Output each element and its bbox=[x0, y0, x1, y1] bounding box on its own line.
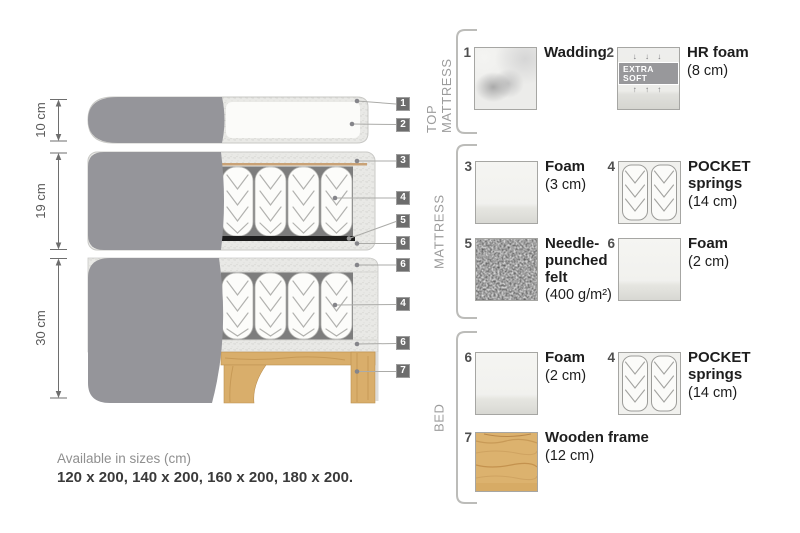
extra-soft-badge: EXTRA SOFT bbox=[618, 62, 679, 85]
legend-number: 6 bbox=[459, 350, 472, 365]
legend-item-pocket-springs: 4 POCKET springs (14 cm) bbox=[602, 161, 783, 224]
callout-tag-4b: 4 bbox=[396, 297, 410, 311]
wadding-swatch bbox=[474, 47, 537, 110]
section-title-top-mattress: TOP MATTRESS bbox=[428, 30, 450, 133]
top-mattress-fabric-cover bbox=[88, 97, 225, 143]
legend-number: 2 bbox=[601, 45, 614, 60]
dimension-label-bed: 30 cm bbox=[33, 298, 49, 358]
callout-tag-4: 4 bbox=[396, 191, 410, 205]
legend-item-hr-foam: 2 ↓ ↓ ↓ EXTRA SOFT ↑ ↑ ↑ HR foam (8 cm) bbox=[601, 47, 782, 110]
material-dimension: (8 cm) bbox=[687, 62, 782, 81]
callout-tag-1: 1 bbox=[396, 97, 410, 111]
material-dimension: (12 cm) bbox=[545, 447, 705, 466]
callout-tag-5: 5 bbox=[396, 214, 410, 228]
wood-swatch bbox=[475, 432, 538, 492]
legend-number: 7 bbox=[459, 430, 472, 445]
callout-tag-6a: 6 bbox=[396, 236, 410, 250]
legend-number: 4 bbox=[602, 350, 615, 365]
legend-label: Foam (2 cm) bbox=[688, 236, 783, 272]
callout-tag-6c: 6 bbox=[396, 336, 410, 350]
dimension-label-top-mattress: 10 cm bbox=[33, 90, 49, 150]
callout-tag-7: 7 bbox=[396, 364, 410, 378]
legend-number: 6 bbox=[602, 236, 615, 251]
material-dimension: (14 cm) bbox=[688, 384, 783, 403]
legend-item-pocket-springs-bed: 4 POCKET springs (14 cm) bbox=[602, 352, 783, 415]
material-dimension: (2 cm) bbox=[688, 253, 783, 272]
arrows-up-icon: ↑ ↑ ↑ bbox=[633, 86, 664, 94]
legend-label: Wooden frame (12 cm) bbox=[545, 430, 705, 466]
bed-cross-section bbox=[88, 258, 379, 403]
dimension-arrows bbox=[50, 100, 67, 399]
wood-texture bbox=[476, 433, 537, 491]
felt-swatch bbox=[475, 238, 538, 301]
bed-fabric-cover bbox=[88, 258, 223, 403]
hr-foam-core bbox=[226, 102, 360, 138]
material-name: Foam bbox=[688, 236, 783, 253]
foam-swatch bbox=[618, 238, 681, 301]
material-name: POCKET springs bbox=[688, 159, 783, 193]
legend-number: 5 bbox=[459, 236, 472, 251]
foam-swatch bbox=[475, 161, 538, 224]
available-sizes-title: Available in sizes (cm) bbox=[57, 451, 191, 466]
section-title-mattress: MATTRESS bbox=[428, 145, 450, 318]
legend-label: HR foam (8 cm) bbox=[687, 45, 782, 81]
felt-texture bbox=[476, 239, 537, 300]
extra-soft-stack: ↓ ↓ ↓ EXTRA SOFT ↑ ↑ ↑ bbox=[618, 53, 679, 94]
pocket-springs-swatch bbox=[618, 352, 681, 415]
legend-item-foam-2cm: 6 Foam (2 cm) bbox=[602, 238, 783, 301]
legend-item-wooden-frame: 7 Wooden frame (12 cm) bbox=[459, 432, 705, 492]
callout-tag-2: 2 bbox=[396, 118, 410, 132]
callout-tag-6b: 6 bbox=[396, 258, 410, 272]
pocket-springs-illustration bbox=[619, 162, 680, 223]
material-dimension: (14 cm) bbox=[688, 193, 783, 212]
section-title-bed: BED bbox=[428, 332, 450, 503]
mattress-spec-diagram: 10 cm 19 cm 30 cm 1 2 3 4 5 6 6 4 6 7 TO… bbox=[0, 0, 800, 533]
callout-tag-3: 3 bbox=[396, 154, 410, 168]
material-name: Wooden frame bbox=[545, 430, 705, 447]
pocket-springs-swatch bbox=[618, 161, 681, 224]
hr-foam-swatch: ↓ ↓ ↓ EXTRA SOFT ↑ ↑ ↑ bbox=[617, 47, 680, 110]
legend-label: POCKET springs (14 cm) bbox=[688, 350, 783, 402]
legend-number: 3 bbox=[459, 159, 472, 174]
arrows-down-icon: ↓ ↓ ↓ bbox=[633, 53, 664, 61]
legend-number: 4 bbox=[602, 159, 615, 174]
pocket-springs-illustration bbox=[619, 353, 680, 414]
material-name: HR foam bbox=[687, 45, 782, 62]
available-sizes-list: 120 x 200, 140 x 200, 160 x 200, 180 x 2… bbox=[57, 469, 353, 486]
material-name: POCKET springs bbox=[688, 350, 783, 384]
legend-number: 1 bbox=[458, 45, 471, 60]
felt-layer-bar bbox=[221, 236, 355, 241]
mattress-top-tape bbox=[220, 163, 367, 166]
wooden-frame bbox=[221, 352, 379, 403]
mattress-cross-section bbox=[88, 152, 375, 250]
top-mattress-cross-section bbox=[88, 97, 368, 143]
legend-item-felt: 5 Needle-punched felt (400 g/m²) bbox=[459, 238, 623, 305]
dimension-label-mattress: 19 cm bbox=[33, 171, 49, 231]
mattress-fabric-cover bbox=[88, 152, 224, 250]
legend-label: POCKET springs (14 cm) bbox=[688, 159, 783, 211]
foam-swatch bbox=[475, 352, 538, 415]
